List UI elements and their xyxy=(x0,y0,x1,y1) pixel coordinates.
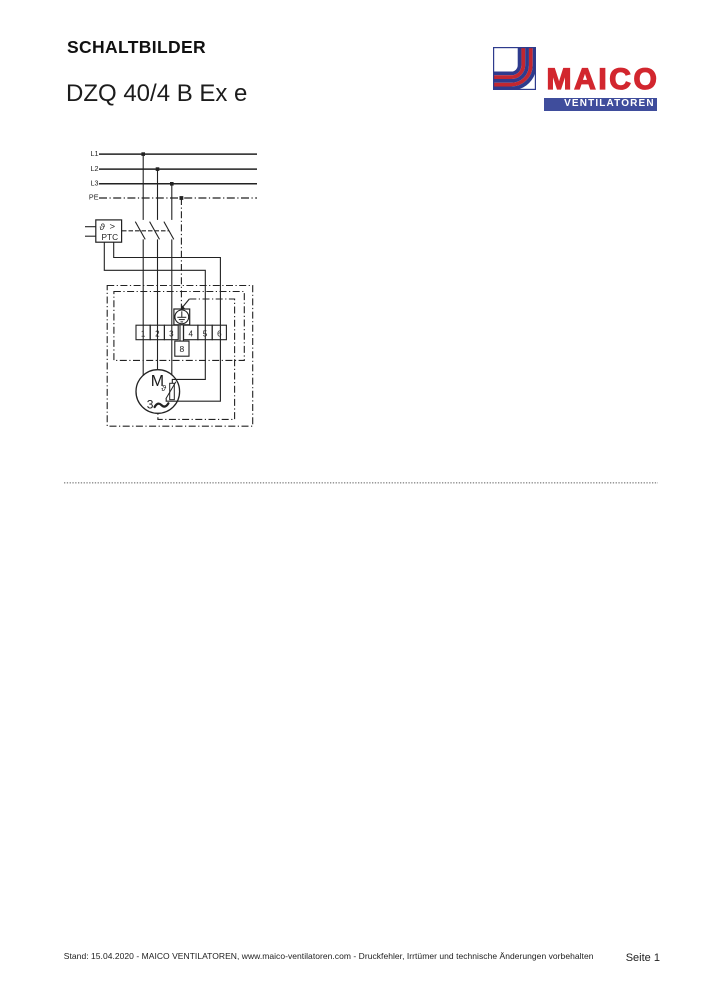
svg-text:5: 5 xyxy=(203,329,208,338)
svg-text:ϑ: ϑ xyxy=(100,222,106,233)
svg-text:1: 1 xyxy=(141,329,146,338)
svg-text:4: 4 xyxy=(188,329,193,338)
svg-text:L3: L3 xyxy=(91,179,99,188)
svg-text:6: 6 xyxy=(217,329,222,338)
svg-text:PTC: PTC xyxy=(101,232,118,242)
svg-text:3: 3 xyxy=(147,397,154,411)
svg-text:L2: L2 xyxy=(91,164,99,173)
svg-text:2: 2 xyxy=(155,329,160,338)
svg-text:8: 8 xyxy=(180,344,185,354)
svg-text:>: > xyxy=(110,222,116,233)
svg-text:PE: PE xyxy=(89,193,99,202)
svg-text:L1: L1 xyxy=(91,149,99,158)
svg-text:3: 3 xyxy=(169,329,174,338)
svg-text:ϑ: ϑ xyxy=(161,383,166,393)
